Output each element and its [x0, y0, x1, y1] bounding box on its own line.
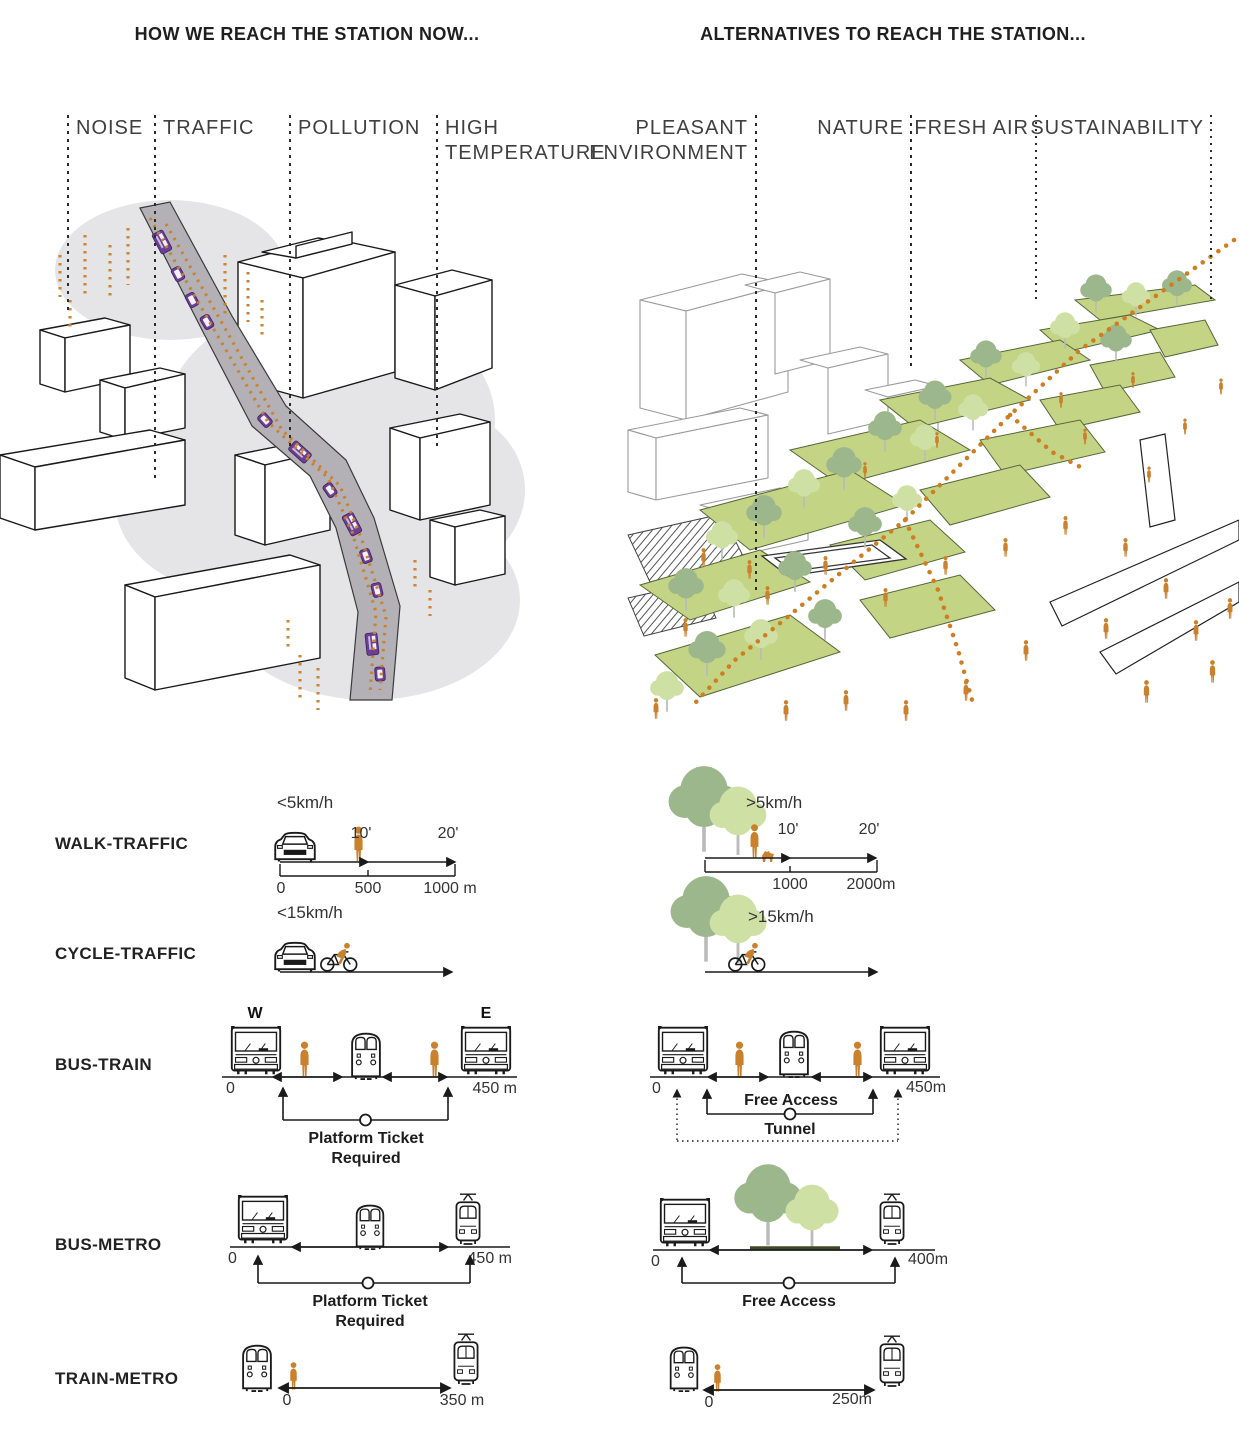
walk-now-0: 0 [277, 880, 286, 897]
train-metro-now-diagram: 0 350 m [243, 1334, 484, 1409]
train-icon [780, 1032, 808, 1077]
walk-alt-20min: 20' [859, 821, 880, 838]
label-fresh-air: FRESH AIR [914, 117, 1029, 139]
bus-metro-now-diagram: 0 450 m Platform Ticket Required [228, 1194, 512, 1330]
train-metro-alt-diagram: 0 250m [671, 1336, 904, 1411]
train-metro-now-0: 0 [283, 1392, 292, 1409]
platform-ticket-note-2: Required [331, 1150, 400, 1167]
cycle-traffic-label: CYCLE-TRAFFIC [55, 944, 196, 963]
station-access-diagram: HOW WE REACH THE STATION NOW... ALTERNAT… [0, 0, 1239, 1431]
train-icon [352, 1034, 380, 1079]
train-icon [671, 1348, 698, 1392]
row-bus-metro: BUS-METRO 0 450 m Platform Ticket Requir… [55, 1164, 948, 1330]
walk-alt-diagram: >5km/h 10' 20' 0 1000 2000m [669, 766, 896, 893]
person-icon [430, 1042, 438, 1077]
car-icon [275, 833, 315, 862]
now-illustration [0, 200, 525, 710]
cycle-alt-speed: >15km/h [748, 907, 814, 926]
bus-icon [239, 1196, 287, 1243]
bus-train-alt-450m: 450m [906, 1079, 946, 1096]
alternatives-title: ALTERNATIVES TO REACH THE STATION... [700, 24, 1086, 44]
person-icon [751, 824, 759, 857]
walk-now-20min: 20' [438, 825, 459, 842]
alternative-illustration [628, 240, 1239, 721]
label-pollution: POLLUTION [298, 117, 420, 139]
bus-icon [881, 1027, 929, 1074]
walk-traffic-label: WALK-TRAFFIC [55, 834, 188, 853]
row-train-metro: TRAIN-METRO 0 350 m 0 250m [55, 1334, 904, 1411]
cyclist-icon [729, 943, 765, 971]
label-sustainability: SUSTAINABILITY [1030, 117, 1204, 139]
bus-metro-alt-0: 0 [651, 1253, 660, 1270]
bus-icon [661, 1199, 709, 1246]
west-label: W [247, 1005, 263, 1022]
train-icon [357, 1206, 384, 1250]
tram-icon [456, 1194, 479, 1244]
person-icon [853, 1042, 861, 1077]
train-metro-alt-250m: 250m [832, 1391, 872, 1408]
now-title: HOW WE REACH THE STATION NOW... [135, 24, 480, 44]
bus-icon [462, 1027, 510, 1074]
label-high-temperature-1: HIGH [445, 117, 499, 139]
platform-ticket-note-1: Platform Ticket [308, 1130, 424, 1147]
free-access-note: Free Access [742, 1293, 836, 1310]
bus-train-alt-diagram: 0 450m Free Access Tunnel [650, 1027, 946, 1141]
train-icon [243, 1346, 271, 1391]
label-high-temperature-2: TEMPERATURE [445, 142, 606, 164]
tram-icon [880, 1336, 903, 1386]
diagram-canvas: HOW WE REACH THE STATION NOW... ALTERNAT… [0, 0, 1239, 1431]
person-icon [714, 1364, 720, 1391]
walk-now-diagram: <5km/h 10' 20' 0 500 1000 m [275, 793, 476, 897]
walk-alt-2000m: 2000m [847, 876, 896, 893]
tunnel-note: Tunnel [764, 1121, 815, 1138]
bus-metro-now-0: 0 [228, 1250, 237, 1267]
train-metro-label: TRAIN-METRO [55, 1369, 178, 1388]
walk-alt-speed: >5km/h [746, 793, 802, 812]
label-nature: NATURE [817, 117, 904, 139]
tram-icon [880, 1194, 903, 1244]
walk-now-10min: 10' [351, 825, 372, 842]
bus-metro-alt-diagram: 0 400m Free Access [651, 1164, 948, 1310]
bus-metro-now-450m: 450 m [468, 1250, 512, 1267]
east-label: E [481, 1005, 492, 1022]
bus-icon [659, 1027, 707, 1074]
bus-metro-alt-400m: 400m [908, 1251, 948, 1268]
walk-now-500: 500 [355, 880, 382, 897]
row-walk-traffic: WALK-TRAFFIC <5km/h 10' 20' 0 500 1000 m… [55, 766, 895, 897]
person-icon [735, 1042, 743, 1077]
car-icon [275, 943, 315, 972]
label-traffic: TRAFFIC [163, 117, 254, 139]
train-metro-now-350m: 350 m [440, 1392, 484, 1409]
cycle-now-speed: <15km/h [277, 903, 343, 922]
platform-ticket-note-1: Platform Ticket [312, 1293, 428, 1310]
bus-train-alt-0: 0 [652, 1080, 661, 1097]
walk-now-speed: <5km/h [277, 793, 333, 812]
walk-alt-10min: 10' [778, 821, 799, 838]
bus-train-now-0: 0 [226, 1080, 235, 1097]
cycle-now-diagram: <15km/h [275, 903, 452, 972]
dog-icon [762, 851, 774, 862]
label-noise: NOISE [76, 117, 143, 139]
label-pleasant-environment-2: ENVIRONMENT [589, 142, 748, 164]
platform-ticket-note-2: Required [335, 1313, 404, 1330]
bus-train-now-450m: 450 m [473, 1080, 517, 1097]
bus-metro-label: BUS-METRO [55, 1235, 162, 1254]
ramps-walls [1050, 434, 1239, 674]
bus-icon [232, 1027, 280, 1074]
person-icon [300, 1042, 308, 1077]
bus-train-label: BUS-TRAIN [55, 1055, 152, 1074]
tram-icon [454, 1334, 477, 1384]
walk-alt-1000: 1000 [772, 876, 808, 893]
cyclist-icon [321, 943, 357, 971]
person-icon [290, 1362, 296, 1389]
train-metro-alt-0: 0 [705, 1394, 714, 1411]
label-pleasant-environment-1: PLEASANT [636, 117, 748, 139]
row-bus-train: BUS-TRAIN W E 0 450 m Platform Ticket Re… [55, 1005, 946, 1167]
bus-train-now-diagram: W E 0 450 m Platform Ticket Required [222, 1005, 517, 1167]
free-access-note: Free Access [744, 1092, 838, 1109]
walk-now-1000m: 1000 m [423, 880, 476, 897]
